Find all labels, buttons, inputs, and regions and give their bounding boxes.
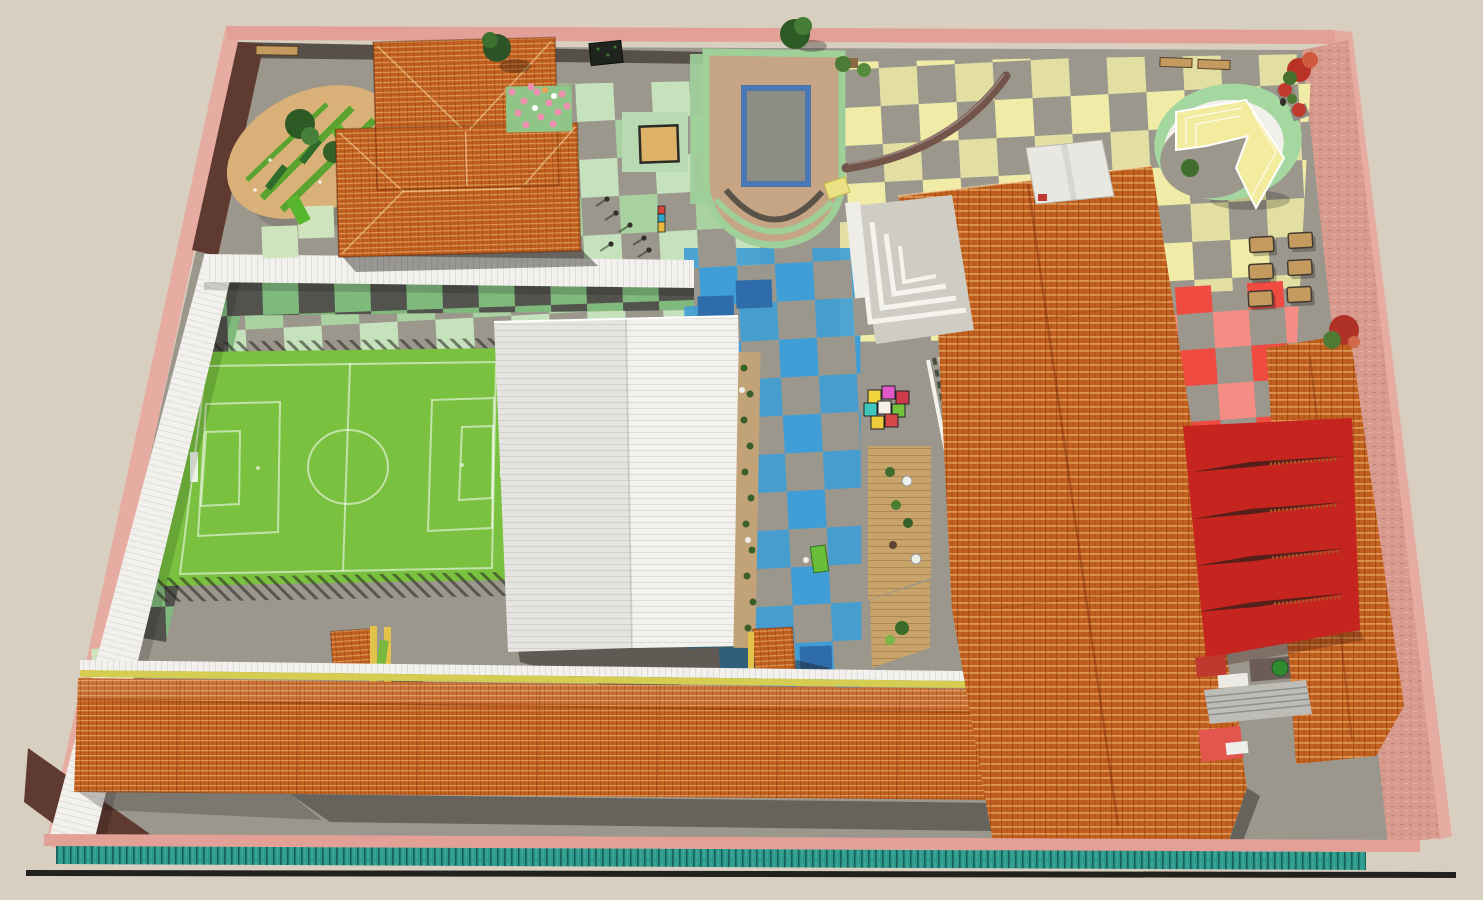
red-shade-canopy bbox=[1183, 418, 1364, 668]
white-canopy bbox=[1026, 140, 1114, 204]
dark-trellis bbox=[589, 40, 623, 65]
site-plan-svg bbox=[0, 0, 1483, 900]
bench bbox=[1288, 232, 1313, 248]
plant bbox=[885, 467, 895, 477]
bush bbox=[835, 56, 851, 72]
sandbox bbox=[622, 112, 688, 172]
white-gym-building bbox=[494, 316, 760, 690]
bench bbox=[1287, 286, 1312, 302]
plant bbox=[1181, 159, 1199, 177]
wood-deck bbox=[868, 446, 931, 668]
table bbox=[902, 476, 912, 486]
bush bbox=[857, 63, 871, 77]
colorful-figure bbox=[658, 206, 665, 232]
pool bbox=[744, 88, 808, 184]
round-table bbox=[1272, 660, 1288, 676]
balloon-plot bbox=[506, 84, 573, 133]
bench bbox=[1248, 290, 1273, 306]
bench bbox=[1288, 259, 1313, 275]
campus-aerial-render bbox=[0, 0, 1483, 900]
tree-shadow bbox=[499, 59, 531, 73]
plant bbox=[895, 621, 909, 635]
pool-complex bbox=[690, 52, 850, 245]
person bbox=[1280, 98, 1286, 106]
bench bbox=[1249, 236, 1274, 252]
bench bbox=[1249, 263, 1274, 279]
table bbox=[911, 554, 921, 564]
